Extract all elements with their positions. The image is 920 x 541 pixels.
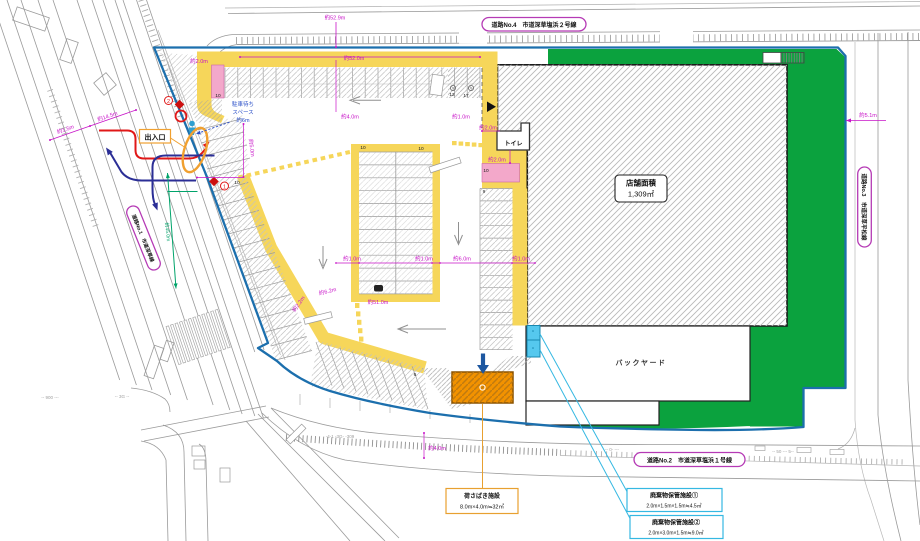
- svg-text:約51.0m: 約51.0m: [368, 298, 389, 306]
- svg-text:廃棄物保管施設②: 廃棄物保管施設②: [652, 519, 700, 527]
- svg-text:2.0m×1.5m×1.5m≒4.5㎥: 2.0m×1.5m×1.5m≒4.5㎥: [646, 503, 701, 510]
- svg-text:-- 50 --- 5--: -- 50 --- 5--: [772, 449, 794, 454]
- svg-text:12: 12: [449, 92, 455, 98]
- svg-text:約5.1m: 約5.1m: [859, 111, 877, 119]
- svg-text:2.0m×3.0m×1.5m≒9.0㎥: 2.0m×3.0m×1.5m≒9.0㎥: [648, 530, 703, 537]
- svg-text:-- 3G --: -- 3G --: [115, 394, 130, 399]
- svg-text:約6.0m: 約6.0m: [453, 255, 471, 263]
- svg-text:約52.0m: 約52.0m: [344, 54, 365, 62]
- svg-text:約1.0m: 約1.0m: [452, 113, 470, 121]
- svg-text:約1.0m: 約1.0m: [343, 255, 361, 263]
- svg-text:約2.0m: 約2.0m: [190, 57, 208, 65]
- svg-text:-- 0- ---: -- 0- ---: [605, 447, 619, 452]
- svg-text:1: 1: [223, 185, 226, 191]
- svg-text:約4.0m: 約4.0m: [428, 444, 446, 452]
- svg-text:10: 10: [215, 93, 221, 99]
- svg-text:10: 10: [418, 146, 424, 152]
- svg-text:-- 900 ---: -- 900 ---: [41, 395, 59, 400]
- svg-text:駐車待ち: 駐車待ち: [232, 100, 254, 108]
- svg-text:廃棄物保管施設①: 廃棄物保管施設①: [650, 492, 698, 500]
- svg-text:2: 2: [167, 99, 170, 105]
- svg-text:9: 9: [483, 189, 486, 195]
- svg-text:8.0m×4.0m≒32㎡: 8.0m×4.0m≒32㎡: [460, 503, 504, 511]
- svg-text:道路No.3 市道深草平松線: 道路No.3 市道深草平松線: [860, 174, 868, 241]
- svg-text:10: 10: [483, 168, 489, 174]
- svg-text:バックヤード: バックヤード: [616, 358, 667, 367]
- svg-text:約52.9m: 約52.9m: [325, 14, 346, 22]
- svg-text:荷さばき施設: 荷さばき施設: [463, 492, 501, 500]
- svg-text:約1.0m: 約1.0m: [415, 255, 433, 263]
- svg-text:6: 6: [414, 372, 417, 378]
- svg-text:道路No.4 市道深草塩浜２号線: 道路No.4 市道深草塩浜２号線: [491, 21, 576, 29]
- svg-text:道路No.2 市道深草塩浜１号線: 道路No.2 市道深草塩浜１号線: [647, 457, 732, 465]
- svg-text:約2.0m: 約2.0m: [488, 156, 506, 164]
- svg-text:スペース: スペース: [232, 109, 253, 116]
- svg-text:約6m: 約6m: [236, 116, 250, 124]
- svg-text:10: 10: [360, 145, 366, 151]
- svg-text:1,309㎡: 1,309㎡: [628, 190, 655, 199]
- svg-text:トイレ: トイレ: [504, 141, 522, 148]
- svg-text:店舗面積: 店舗面積: [626, 178, 656, 188]
- svg-text:約4.0m: 約4.0m: [341, 113, 359, 121]
- svg-text:10: 10: [234, 180, 240, 186]
- svg-text:17: 17: [463, 93, 469, 99]
- svg-text:出入口: 出入口: [145, 133, 166, 142]
- svg-text:-4-1 -3G- -309: -4-1 -3G- -309: [326, 434, 355, 439]
- svg-text:約1.0m: 約1.0m: [512, 255, 530, 263]
